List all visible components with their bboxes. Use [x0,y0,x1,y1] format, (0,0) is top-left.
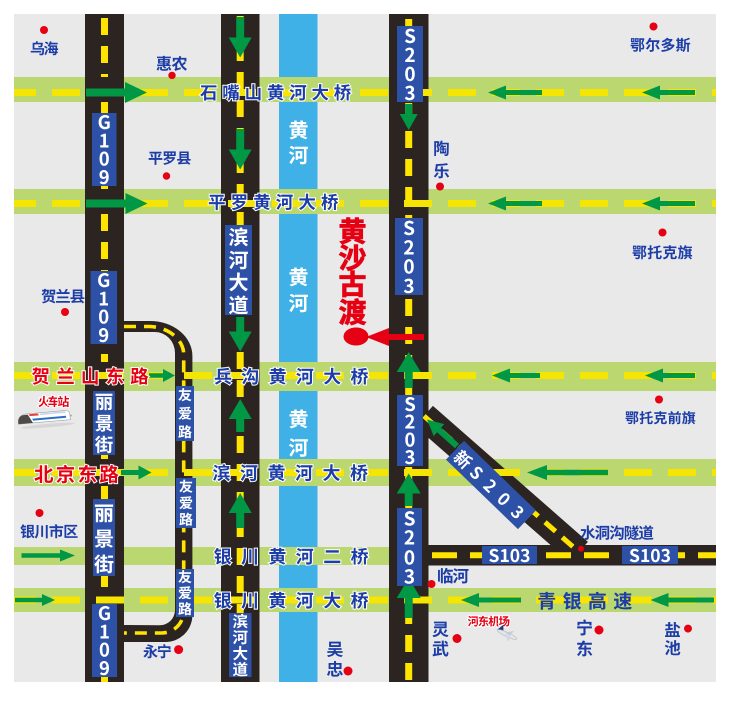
svg-text:旗: 旗 [678,242,693,263]
svg-text:街: 街 [94,549,114,578]
svg-text:兵: 兵 [214,363,232,389]
svg-text:S103: S103 [489,543,531,568]
svg-text:河: 河 [453,563,470,587]
svg-text:大: 大 [323,460,341,486]
svg-text:鄂: 鄂 [625,408,639,428]
svg-text:3: 3 [404,563,415,590]
svg-text:区: 区 [63,521,78,542]
svg-text:大: 大 [323,363,341,389]
svg-text:银: 银 [214,543,232,569]
svg-text:黄: 黄 [268,543,286,569]
svg-text:武: 武 [432,635,449,660]
svg-text:海: 海 [44,38,59,59]
svg-text:桥: 桥 [334,80,352,105]
svg-text:景: 景 [94,523,114,552]
svg-text:兰: 兰 [55,285,71,307]
svg-text:斯: 斯 [676,35,691,56]
svg-text:黄: 黄 [253,190,271,215]
svg-text:乐: 乐 [433,158,450,182]
svg-text:兰: 兰 [56,363,75,389]
svg-text:速: 速 [613,587,632,614]
svg-text:场: 场 [499,613,511,629]
svg-text:东: 东 [576,635,593,660]
svg-text:道: 道 [229,289,249,318]
svg-text:县: 县 [70,285,86,307]
svg-text:9: 9 [98,322,109,348]
svg-text:河: 河 [289,140,309,169]
svg-text:青: 青 [537,587,556,614]
svg-text:鄂: 鄂 [630,35,645,56]
svg-text:河: 河 [295,460,313,486]
svg-text:罗: 罗 [231,190,249,215]
svg-text:大: 大 [323,587,341,613]
svg-text:贺: 贺 [41,285,57,307]
svg-text:贺: 贺 [32,363,51,389]
svg-text:9: 9 [99,655,110,681]
svg-text:鄂: 鄂 [632,242,647,263]
svg-text:银: 银 [214,587,232,613]
svg-text:川: 川 [241,587,259,613]
svg-text:9: 9 [99,164,110,190]
svg-text:道: 道 [232,658,248,680]
svg-text:东: 东 [106,363,125,389]
svg-text:克: 克 [653,408,667,428]
svg-text:罗: 罗 [162,148,177,169]
svg-text:滨: 滨 [213,460,231,486]
svg-text:渡: 渡 [338,292,366,332]
svg-text:河: 河 [289,432,309,461]
svg-text:石: 石 [200,80,218,105]
svg-text:旗: 旗 [682,408,696,428]
svg-text:路: 路 [99,459,119,488]
svg-text:河: 河 [296,587,314,613]
svg-text:河: 河 [296,543,314,569]
svg-text:站: 站 [57,393,69,410]
svg-text:隧: 隧 [624,522,640,544]
svg-text:尔: 尔 [645,35,660,56]
svg-text:东: 东 [78,459,98,488]
svg-text:道: 道 [638,522,654,544]
svg-text:3: 3 [403,272,414,299]
svg-text:河: 河 [289,288,309,317]
svg-text:农: 农 [172,51,188,75]
svg-text:水: 水 [580,522,596,544]
svg-text:平: 平 [208,190,226,215]
svg-text:洞: 洞 [595,522,611,544]
svg-text:惠: 惠 [156,51,172,75]
svg-text:友: 友 [178,385,192,405]
svg-text:临: 临 [437,563,454,587]
svg-text:黄: 黄 [268,587,286,613]
svg-text:陶: 陶 [433,136,450,160]
svg-text:沟: 沟 [609,522,625,544]
svg-text:河: 河 [276,190,294,215]
svg-text:多: 多 [660,35,675,56]
svg-text:爱: 爱 [178,404,192,424]
svg-text:二: 二 [323,543,341,569]
svg-text:北: 北 [34,459,54,488]
svg-text:大: 大 [312,80,330,105]
svg-text:高: 高 [588,587,607,614]
svg-text:河: 河 [289,80,307,105]
svg-text:黄: 黄 [269,363,287,389]
svg-text:街: 街 [95,431,114,457]
svg-text:路: 路 [130,363,149,389]
svg-text:桥: 桥 [351,587,369,613]
svg-text:黄: 黄 [267,80,285,105]
svg-text:永: 永 [143,641,158,662]
svg-text:托: 托 [639,408,653,428]
svg-text:桥: 桥 [350,460,368,486]
svg-text:3: 3 [405,444,416,470]
svg-text:前: 前 [668,408,682,428]
svg-text:川: 川 [241,543,259,569]
svg-text:桥: 桥 [351,543,369,569]
svg-text:路: 路 [178,599,192,619]
svg-text:嘴: 嘴 [222,80,240,105]
svg-text:忠: 忠 [327,656,344,681]
svg-text:市: 市 [49,521,64,542]
svg-text:山: 山 [245,80,263,105]
svg-text:桥: 桥 [351,363,369,389]
svg-text:黄: 黄 [289,262,309,291]
svg-text:S103: S103 [629,543,671,568]
svg-text:山: 山 [81,363,100,389]
svg-text:银: 银 [563,587,582,614]
svg-text:3: 3 [404,79,415,106]
svg-text:河: 河 [240,460,258,486]
svg-text:黄: 黄 [289,404,309,433]
svg-text:路: 路 [179,510,193,530]
svg-text:川: 川 [34,521,49,542]
svg-text:克: 克 [662,242,677,263]
svg-text:平: 平 [148,148,163,169]
svg-text:河: 河 [296,363,314,389]
svg-text:黄: 黄 [268,460,286,486]
svg-text:托: 托 [647,242,662,263]
svg-text:京: 京 [56,459,76,488]
svg-text:县: 县 [176,148,191,169]
svg-text:大: 大 [298,190,316,215]
svg-text:丽: 丽 [94,497,114,526]
svg-text:路: 路 [178,422,192,442]
svg-text:银: 银 [20,521,35,542]
svg-text:桥: 桥 [321,190,339,215]
svg-text:宁: 宁 [157,641,172,662]
svg-text:沟: 沟 [241,363,259,389]
svg-text:池: 池 [664,635,681,659]
